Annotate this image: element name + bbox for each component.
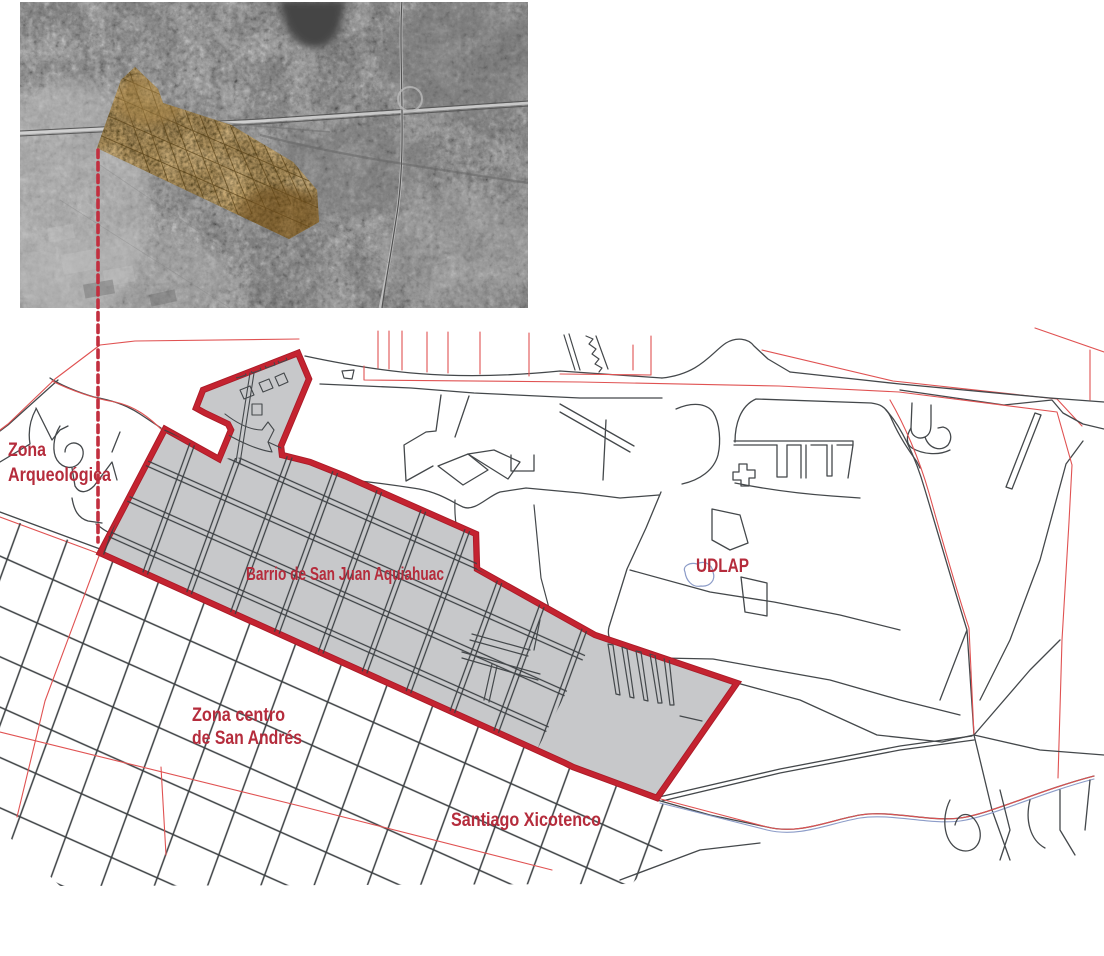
svg-text:UDLAP: UDLAP	[696, 556, 749, 577]
svg-text:Barrio de San Juan Aquiahuac: Barrio de San Juan Aquiahuac	[246, 564, 444, 584]
svg-text:Zona centro: Zona centro	[192, 705, 285, 726]
svg-text:Santiago Xicotenco: Santiago Xicotenco	[451, 810, 601, 831]
svg-text:de San Andrés: de San Andrés	[192, 728, 302, 749]
svg-text:Arqueológica: Arqueológica	[8, 465, 111, 486]
svg-text:Zona: Zona	[8, 440, 46, 461]
